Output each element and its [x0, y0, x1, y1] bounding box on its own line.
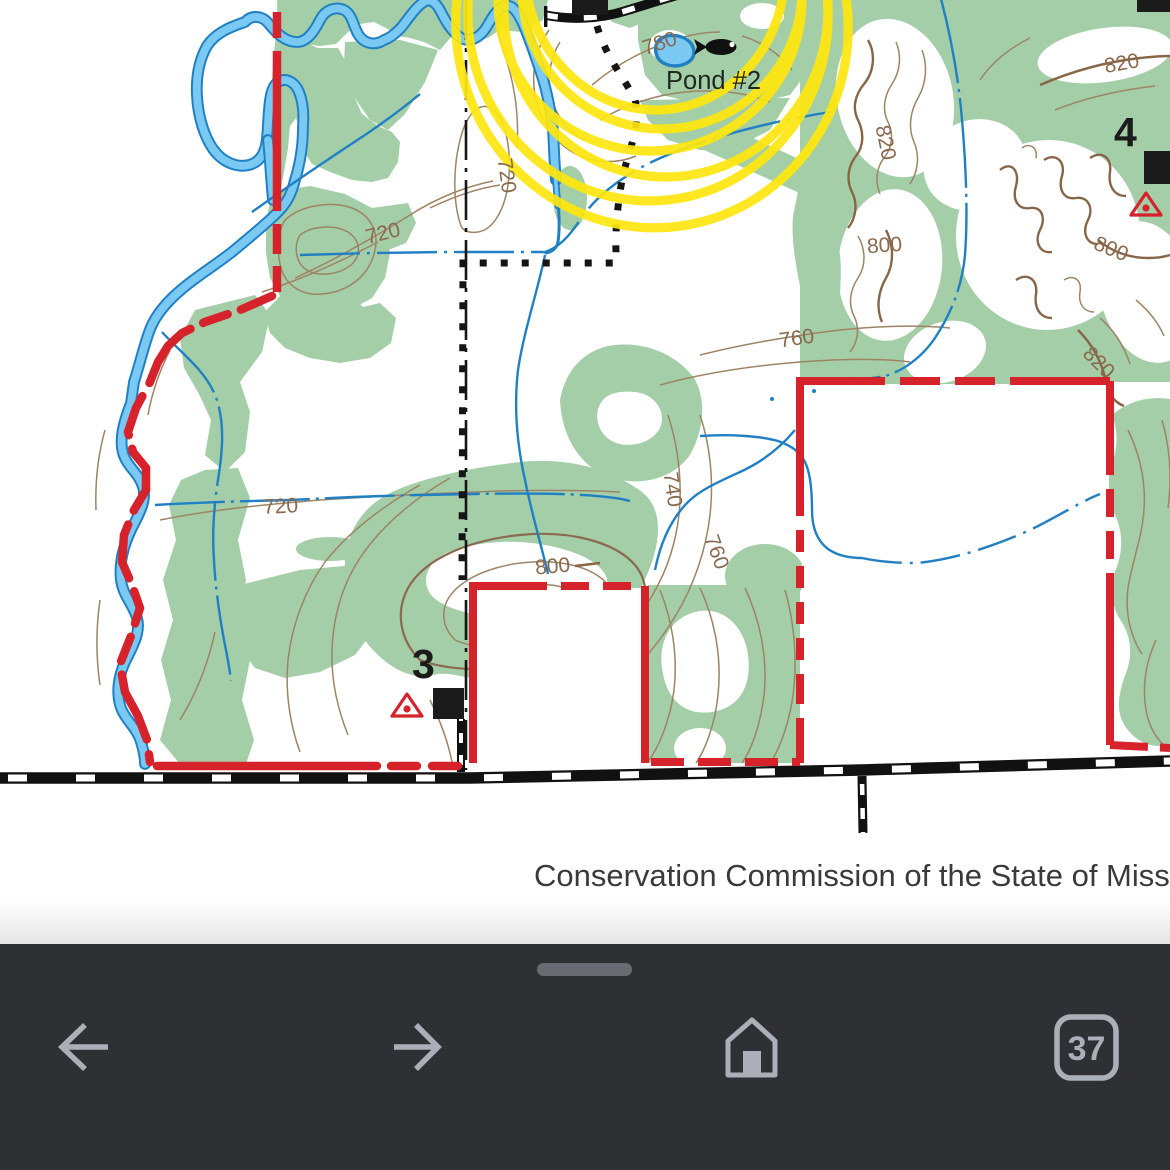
svg-text:800: 800: [534, 554, 571, 580]
svg-text:800: 800: [866, 233, 903, 258]
svg-text:37: 37: [1068, 1030, 1106, 1068]
svg-text:3: 3: [412, 641, 435, 687]
svg-text:Pond #2: Pond #2: [666, 67, 761, 95]
svg-text:720: 720: [493, 157, 521, 195]
svg-text:760: 760: [778, 325, 816, 353]
svg-text:720: 720: [263, 494, 299, 519]
svg-text:4: 4: [1114, 109, 1137, 155]
svg-text:Conservation Commission of the: Conservation Commission of the State of …: [534, 858, 1170, 893]
svg-text:740: 740: [659, 471, 687, 509]
